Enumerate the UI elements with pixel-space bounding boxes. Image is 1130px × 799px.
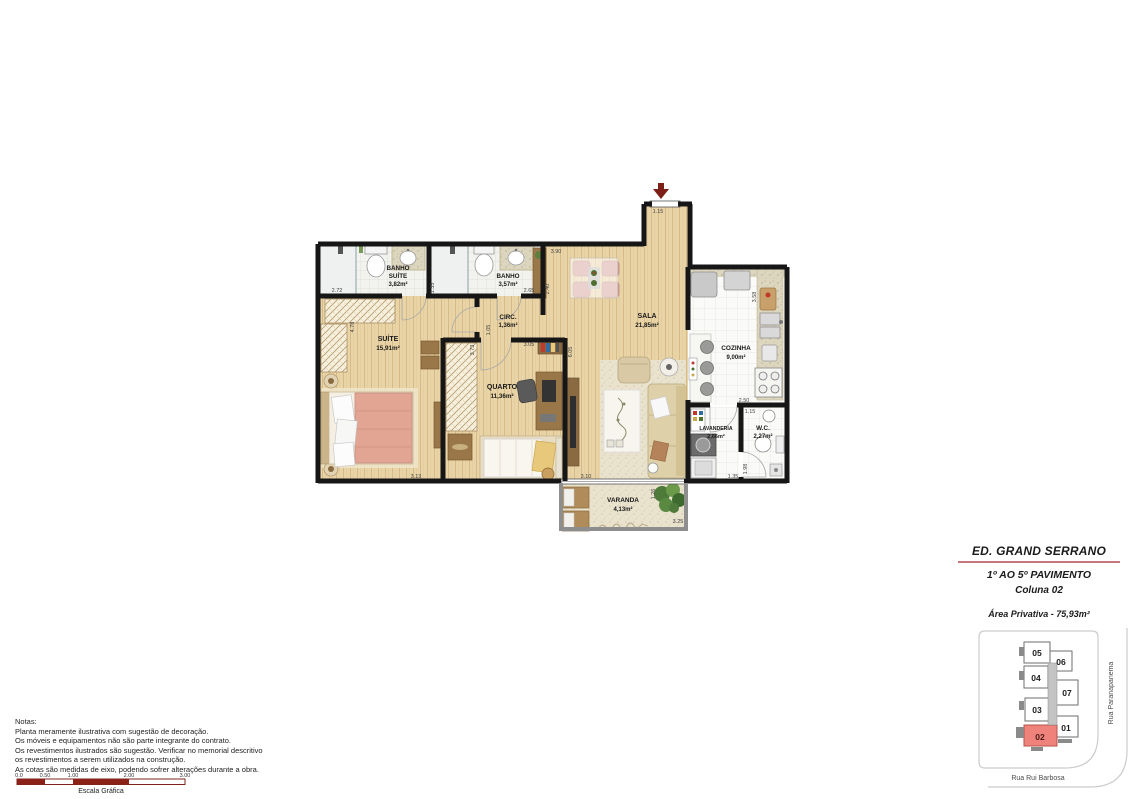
dimension-label: 1.15 xyxy=(653,209,664,215)
street-label-paranapanema: Rua Paranapanema xyxy=(1108,662,1115,725)
brochure-page: BANHO SUÍTE 3,82m² BANHO 3,57m² CIRC. 1,… xyxy=(0,0,1130,799)
dimension-label: 3.10 xyxy=(581,474,592,480)
dimension-label: 1.35 xyxy=(728,474,739,480)
dimension-label: 3.58 xyxy=(752,292,758,303)
room-label-banho-suite-2: SUÍTE xyxy=(389,271,408,280)
entry-door xyxy=(650,201,680,207)
keyplan-unit-label-04: 04 xyxy=(1031,673,1041,683)
dimension-label: 1.05 xyxy=(486,325,492,336)
keyplan-unit-label-02: 02 xyxy=(1035,732,1045,742)
private-area-label: Área Privativa - 75,93m² xyxy=(958,609,1120,619)
keyplan-core xyxy=(1048,663,1057,725)
dimension-label: 3.90 xyxy=(551,249,562,255)
room-label-suite: SUÍTE xyxy=(378,334,399,343)
dimension-label: 2.50 xyxy=(739,398,750,404)
dimension-label: 3.73 xyxy=(470,345,476,356)
room-area-circ: 1,36m² xyxy=(498,322,517,329)
keyplan-unit-label-03: 03 xyxy=(1032,705,1042,715)
notes-heading: Notas: xyxy=(15,717,315,727)
dimension-label: 1.98 xyxy=(743,464,749,475)
keyplan-unit-label-06: 06 xyxy=(1056,657,1066,667)
dimension-label: 2.72 xyxy=(332,288,343,294)
keyplan-unit-label-01: 01 xyxy=(1061,723,1071,733)
scale-bar: 0.0 0.50 1.00 2.00 3.00 Escala Gráfica xyxy=(15,773,190,795)
dimension-label: 6.05 xyxy=(568,347,574,358)
scale-caption: Escala Gráfica xyxy=(78,788,124,795)
dimension-label: 1.15 xyxy=(745,409,756,415)
notes-line: Planta meramente ilustrativa com sugestã… xyxy=(15,727,315,737)
entry-arrow-icon xyxy=(653,183,669,199)
room-area-quarto: 11,36m² xyxy=(490,393,513,400)
building-name: ED. GRAND SERRANO xyxy=(958,544,1120,558)
dimension-label: 2.65 xyxy=(524,288,535,294)
room-label-cozinha: COZINHA xyxy=(721,345,751,352)
notes-line: os revestimentos a serem utilizados na c… xyxy=(15,755,315,765)
floor-plan-canvas: BANHO SUÍTE 3,82m² BANHO 3,57m² CIRC. 1,… xyxy=(0,0,1130,799)
room-label-wc: W.C. xyxy=(756,425,770,432)
room-area-cozinha: 9,00m² xyxy=(726,354,745,361)
room-area-lavanderia: 2,66m² xyxy=(707,433,725,440)
room-area-sala: 21,85m² xyxy=(635,322,658,329)
room-label-circ: CIRC. xyxy=(499,314,516,321)
room-area-suite: 15,91m² xyxy=(376,345,399,352)
dimension-label: 1.35 xyxy=(430,283,436,294)
notes-line: Os revestimentos ilustrados são sugestão… xyxy=(15,746,315,756)
keyplan-unit-label-07: 07 xyxy=(1062,688,1072,698)
keyplan-unit-label-05: 05 xyxy=(1032,648,1042,658)
room-area-banho-suite: 3,82m² xyxy=(388,281,407,288)
room-label-quarto: QUARTO xyxy=(487,384,518,391)
dimension-label: 4.78 xyxy=(350,322,356,333)
column-label: Coluna 02 xyxy=(958,585,1120,596)
dimension-label: 3.13 xyxy=(411,474,422,480)
key-plan: 05 06 04 07 03 01 02 Rua Paranapanema Ru… xyxy=(979,628,1127,787)
room-area-varanda: 4,13m² xyxy=(613,506,632,513)
title-rule xyxy=(958,561,1120,563)
street-label-rui-barbosa: Rua Rui Barbosa xyxy=(1011,775,1064,782)
room-label-banho: BANHO xyxy=(496,273,519,280)
room-area-banho: 3,57m² xyxy=(498,281,517,288)
room-label-varanda: VARANDA xyxy=(607,497,639,504)
title-block: ED. GRAND SERRANO 1º AO 5º PAVIMENTO Col… xyxy=(958,544,1120,619)
room-area-wc: 2,27m² xyxy=(753,433,772,440)
room-label-sala: SALA xyxy=(637,313,656,320)
notes-line: Os móveis e equipamentos não são parte i… xyxy=(15,736,315,746)
room-label-lavanderia: LAVANDERIA xyxy=(699,426,732,432)
room-label-banho-suite: BANHO xyxy=(386,265,409,272)
notes-line: As cotas são medidas de eixo, podendo so… xyxy=(15,765,315,775)
notes-block: Notas: Planta meramente ilustrativa com … xyxy=(15,717,315,775)
dimension-label: 3.25 xyxy=(673,519,684,525)
dimension-label: 1.26 xyxy=(651,489,657,500)
dimension-label: 3.05 xyxy=(524,342,535,348)
dimension-label: 2.40 xyxy=(545,284,551,295)
floors-range: 1º AO 5º PAVIMENTO xyxy=(958,569,1120,581)
